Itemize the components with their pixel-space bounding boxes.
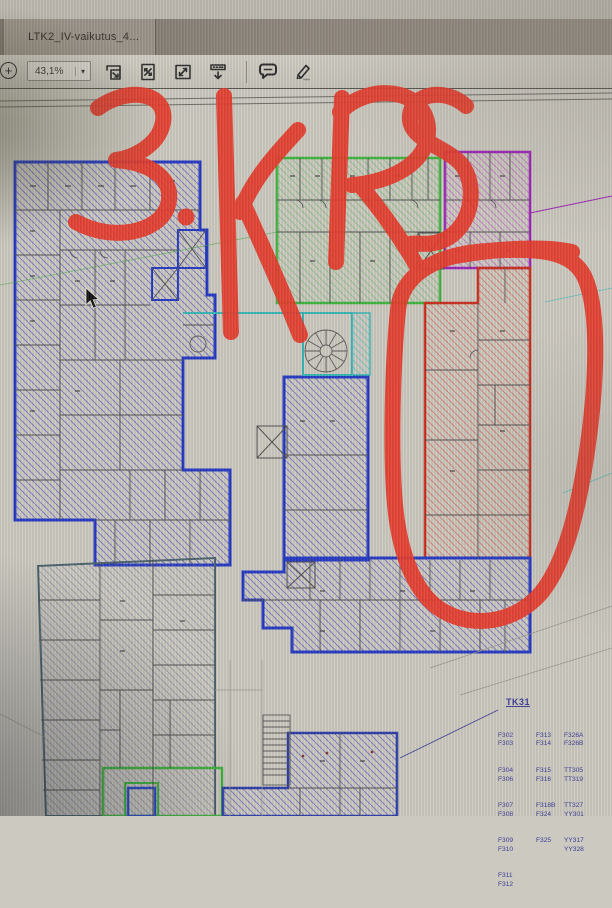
marker-letter-R-stem (336, 98, 342, 262)
marker-circle-top-stroke (455, 249, 572, 256)
marker-circle (392, 250, 595, 621)
marker-letter-K-stem (224, 96, 231, 332)
marker-annotation (0, 0, 612, 816)
marker-letter-K-leg (243, 203, 300, 335)
marker-period (178, 209, 195, 226)
marker-letter-3 (76, 95, 169, 233)
